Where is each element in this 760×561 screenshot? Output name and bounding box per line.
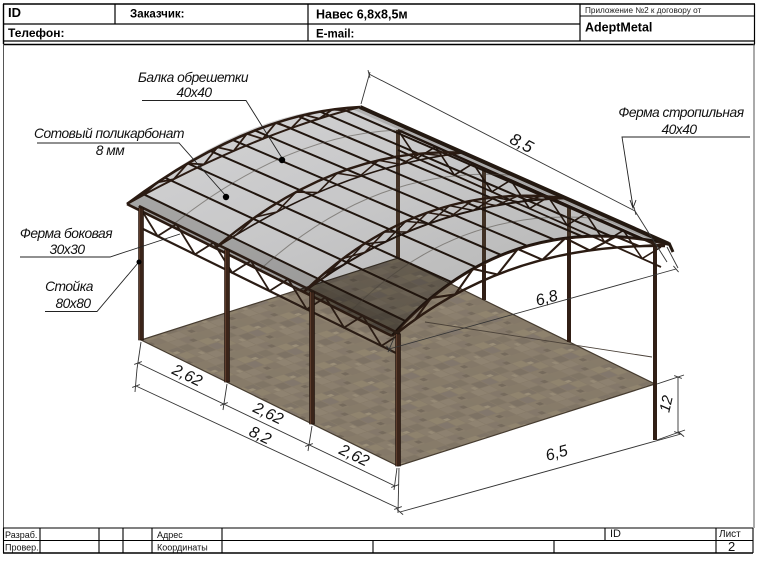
svg-text:E-mail:: E-mail: [316,29,354,41]
svg-text:80х80: 80х80 [55,296,91,311]
svg-text:Приложение №2 к договору от: Приложение №2 к договору от [585,6,701,15]
svg-text:Провер.: Провер. [5,543,39,553]
svg-text:ID: ID [8,5,21,20]
svg-text:Ферма боковая: Ферма боковая [20,226,113,241]
svg-text:Ферма стропильная: Ферма стропильная [618,105,744,120]
svg-text:30х30: 30х30 [49,242,85,257]
svg-text:Балка обрешетки: Балка обрешетки [138,70,249,85]
svg-text:40х40: 40х40 [661,122,697,137]
svg-text:Навес 6,8х8,5м: Навес 6,8х8,5м [316,8,408,22]
svg-text:Координаты: Координаты [157,543,208,553]
svg-text:Телефон:: Телефон: [8,26,64,40]
svg-text:Сотовый поликарбонат: Сотовый поликарбонат [34,126,184,141]
svg-text:ID: ID [610,528,621,540]
svg-text:Заказчик:: Заказчик: [130,9,185,21]
svg-text:2: 2 [728,539,735,554]
svg-text:Адрес: Адрес [157,530,183,540]
svg-text:8 мм: 8 мм [96,143,125,158]
svg-text:Стойка: Стойка [45,279,94,294]
svg-text:40х40: 40х40 [176,85,212,100]
svg-text:AdeptMetal: AdeptMetal [585,21,652,35]
svg-text:Разраб.: Разраб. [5,530,37,540]
